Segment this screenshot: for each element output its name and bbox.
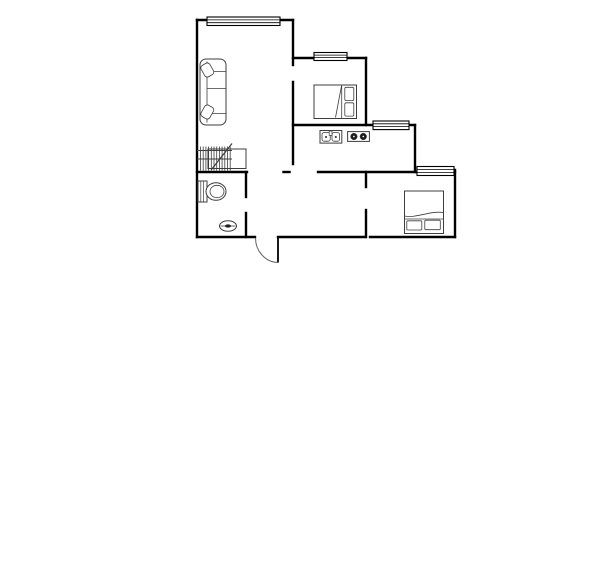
washbasin-drain	[225, 224, 231, 227]
stove-burner-center	[362, 136, 364, 138]
stove-burner-center	[353, 136, 355, 138]
bed2-pillow	[407, 221, 422, 230]
toilet-bowl-inner	[210, 185, 224, 197]
sink-faucet	[329, 131, 332, 135]
floorplan-svg	[0, 0, 600, 584]
doors-layer	[256, 238, 279, 263]
bed1-pillow	[345, 87, 354, 100]
sink-drain	[325, 136, 327, 138]
entry-door-swing-arc	[256, 238, 279, 263]
bed1-pillow	[345, 103, 354, 116]
sink-drain	[335, 136, 337, 138]
window-living-frame	[207, 17, 280, 26]
window-bedroom2-frame	[417, 167, 454, 176]
window-bedroom1-frame	[314, 53, 347, 61]
floorplan-image	[0, 0, 600, 584]
window-dining-frame	[373, 121, 409, 130]
bed2-pillow	[425, 220, 441, 230]
furniture-layer	[197, 59, 444, 234]
